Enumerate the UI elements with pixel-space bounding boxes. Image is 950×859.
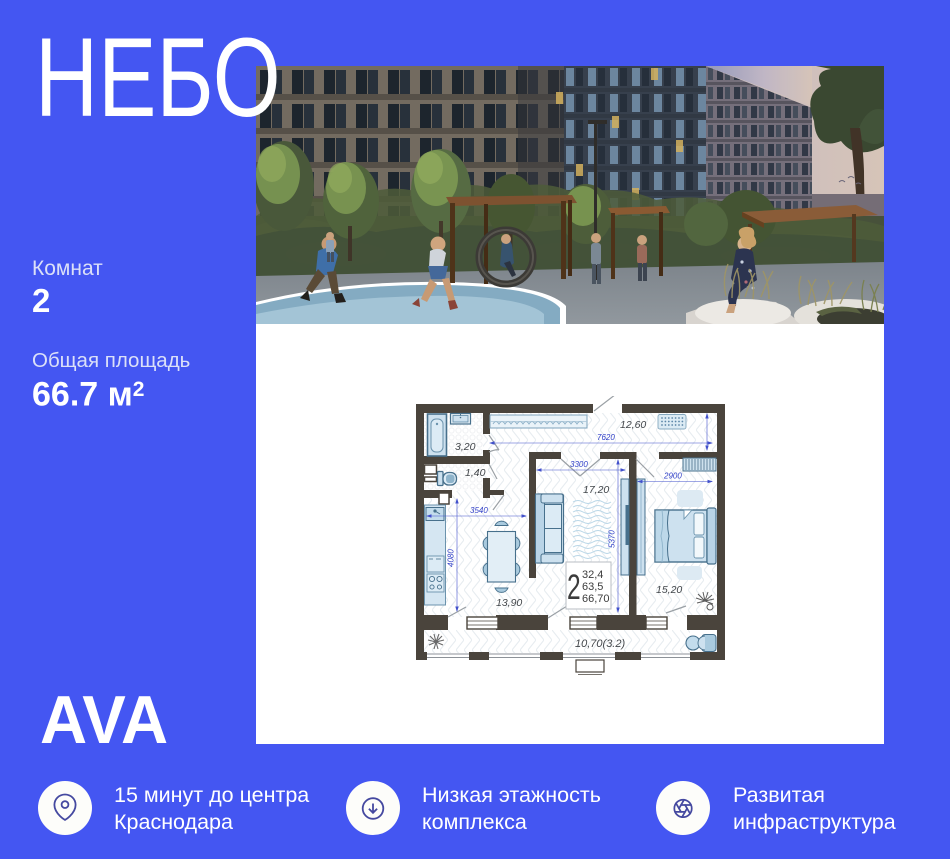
svg-text:3540: 3540 <box>470 506 488 515</box>
svg-text:1,40: 1,40 <box>465 467 486 479</box>
svg-text:4080: 4080 <box>447 549 456 567</box>
svg-text:5370: 5370 <box>608 530 617 548</box>
svg-text:66,70: 66,70 <box>582 593 610 605</box>
svg-text:2: 2 <box>567 569 581 607</box>
svg-text:32,4: 32,4 <box>582 569 603 581</box>
svg-text:3,20: 3,20 <box>455 441 476 453</box>
svg-text:63,5: 63,5 <box>582 581 603 593</box>
svg-text:3300: 3300 <box>570 460 588 469</box>
svg-text:7620: 7620 <box>597 433 615 442</box>
svg-text:10,70(3.2): 10,70(3.2) <box>575 638 625 650</box>
svg-text:13,90: 13,90 <box>496 597 522 609</box>
svg-text:12,60: 12,60 <box>620 419 646 431</box>
svg-text:2900: 2900 <box>663 472 682 481</box>
svg-text:15,20: 15,20 <box>656 584 682 596</box>
svg-text:17,20: 17,20 <box>583 484 609 496</box>
